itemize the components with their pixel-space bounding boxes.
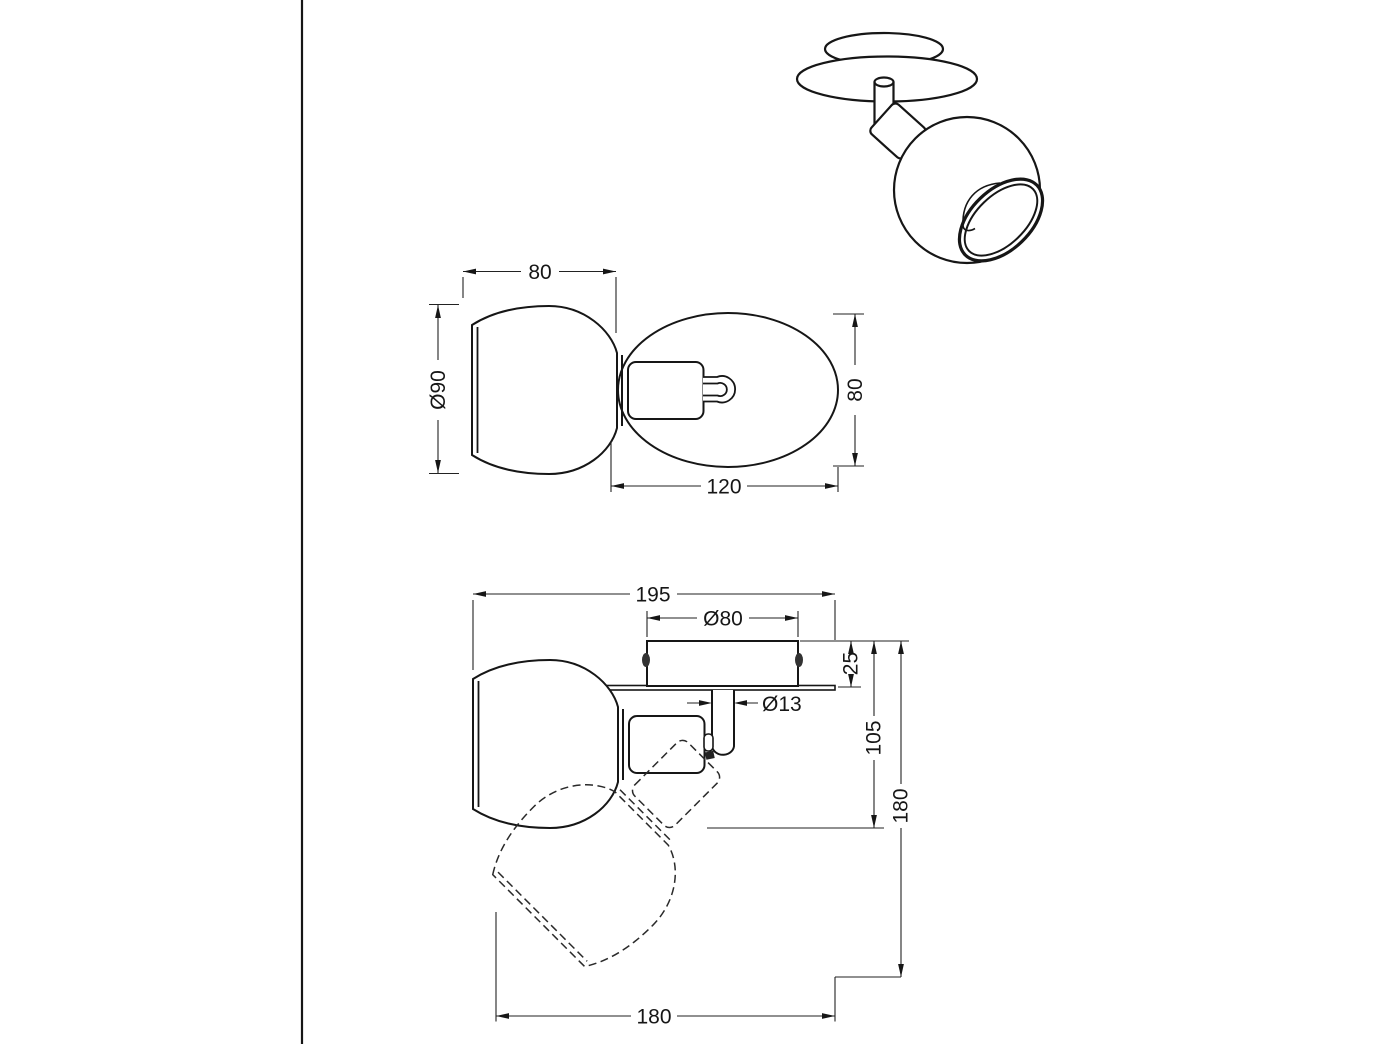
side-lamp-holder — [629, 716, 705, 773]
arrow-left — [611, 483, 624, 489]
dashed-neck-line — [620, 790, 670, 840]
dim-label-canopy-diameter: Ø80 — [703, 608, 743, 631]
arrow-down — [852, 453, 858, 466]
arrow-left — [647, 615, 660, 621]
arrow-right — [822, 591, 835, 597]
dim-top-plate-length: 120 — [611, 441, 838, 499]
arrow-up — [435, 305, 441, 318]
dim-label-overall-height: 180 — [890, 788, 913, 823]
arrow-left — [496, 1013, 509, 1019]
top-socket-clip-inner — [703, 383, 727, 396]
dim-label-plate-height: 80 — [844, 378, 867, 401]
dim-side-canopy-diameter: Ø80 — [647, 608, 798, 638]
arrow-right — [603, 269, 616, 275]
dim-label-shade-width: 80 — [528, 261, 551, 284]
arrow-up — [871, 641, 877, 654]
side-joint-clamp — [704, 734, 713, 751]
side-view: 195 Ø80 25 Ø13 105 — [473, 584, 913, 1029]
arrow-right-tip — [699, 700, 712, 706]
dim-label-shade-diameter: Ø90 — [427, 370, 450, 410]
side-canopy-screw-left — [642, 653, 650, 667]
side-canopy-box — [647, 641, 798, 686]
dim-label-stem-diameter: Ø13 — [762, 693, 802, 716]
perspective-view — [797, 33, 1058, 276]
drawing-page: 80 Ø90 80 120 — [0, 0, 1392, 1044]
arrow-right — [822, 1013, 835, 1019]
arrow-left — [473, 591, 486, 597]
top-lamp-holder — [628, 362, 704, 419]
side-canopy-screw-right — [795, 653, 803, 667]
dim-label-depth-to-joint: 105 — [863, 720, 886, 755]
top-ball-shade — [472, 306, 617, 474]
dim-side-canopy-depth: 25 — [838, 641, 863, 687]
arrow-down — [435, 460, 441, 473]
arrow-right — [825, 483, 838, 489]
arrow-down — [898, 964, 904, 977]
top-view: 80 Ø90 80 120 — [427, 261, 867, 499]
side-ball-shade — [473, 660, 618, 828]
dim-top-shade-diameter: Ø90 — [427, 305, 459, 474]
arrow-left — [463, 269, 476, 275]
dim-label-overall-width: 195 — [635, 584, 670, 607]
side-joint-screw — [705, 751, 715, 760]
iso-stem-cap — [875, 78, 894, 87]
side-stem — [712, 690, 734, 755]
dim-label-canopy-depth: 25 — [840, 652, 863, 675]
arrow-up — [852, 314, 858, 327]
arrow-down — [871, 815, 877, 828]
dim-side-stem-diameter: Ø13 — [687, 693, 802, 716]
arrow-up — [898, 641, 904, 654]
arrow-right — [785, 615, 798, 621]
dim-label-plate-length: 120 — [706, 476, 741, 499]
dimension-drawing: 80 Ø90 80 120 — [0, 0, 1392, 1044]
arrow-left-tip — [734, 700, 747, 706]
dim-label-swivel-span: 180 — [636, 1006, 671, 1029]
dashed-shade-front-edge — [498, 872, 587, 961]
